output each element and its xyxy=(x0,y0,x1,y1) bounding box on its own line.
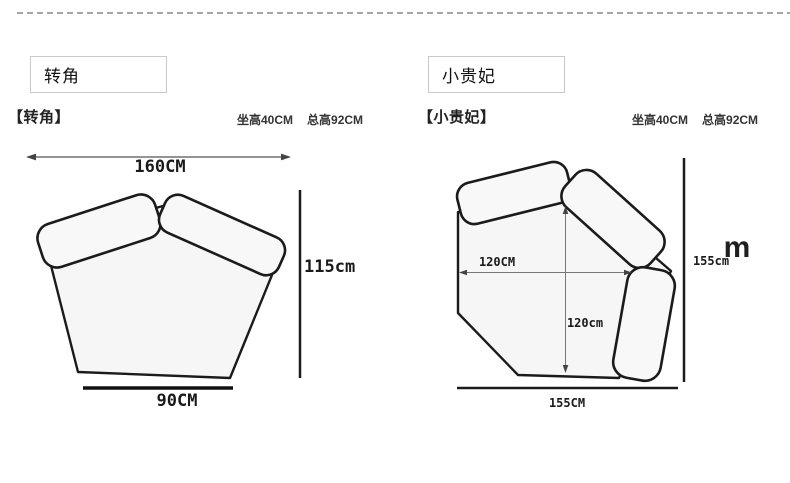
corner-sofa-drawing: 160CM 115cm 90CM xyxy=(26,154,355,411)
chaise-sofa-drawing: 120CM 120cm 155CM 155cm m xyxy=(454,158,750,410)
watermark-m: m xyxy=(724,231,751,264)
furniture-size-sheet: 转角 【转角】 坐高40CM 总高92CM 小贵妃 【小贵妃】 坐高40CM 总… xyxy=(0,0,790,483)
sofa-diagrams: 160CM 115cm 90CM 120CM 120cm xyxy=(0,0,790,483)
chaise-inner-width-label: 120CM xyxy=(479,255,515,269)
corner-width-arrow-left xyxy=(26,154,36,161)
corner-width-arrow-right xyxy=(281,154,291,161)
corner-bottom-label: 90CM xyxy=(157,391,198,411)
chaise-bottom-label: 155CM xyxy=(549,396,585,410)
corner-width-label: 160CM xyxy=(134,157,185,177)
corner-height-label: 115cm xyxy=(304,257,355,277)
chaise-inner-depth-label: 120cm xyxy=(567,316,603,330)
